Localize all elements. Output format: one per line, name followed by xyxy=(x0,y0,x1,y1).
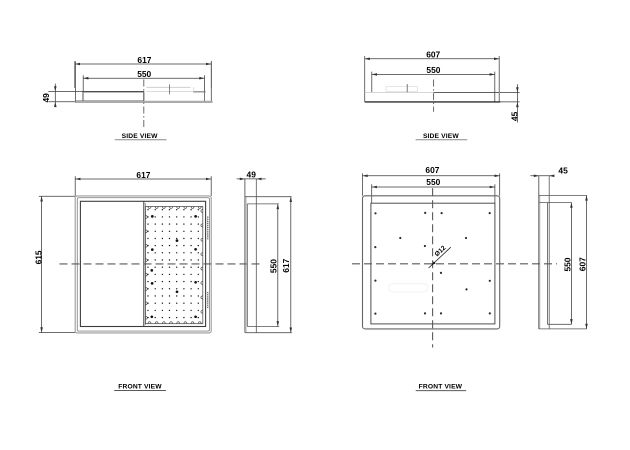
svg-text:550: 550 xyxy=(426,65,440,75)
svg-text:FRONT VIEW: FRONT VIEW xyxy=(419,383,463,390)
svg-text:617: 617 xyxy=(137,55,151,65)
svg-text:49: 49 xyxy=(41,93,51,103)
svg-text:SIDE VIEW: SIDE VIEW xyxy=(423,133,459,140)
svg-text:FRONT VIEW: FRONT VIEW xyxy=(118,383,162,390)
svg-text:607: 607 xyxy=(425,165,439,175)
svg-text:SIDE VIEW: SIDE VIEW xyxy=(122,133,158,140)
svg-text:45: 45 xyxy=(558,165,568,175)
svg-text:49: 49 xyxy=(247,170,257,180)
svg-text:550: 550 xyxy=(426,177,440,187)
svg-text:615: 615 xyxy=(34,250,44,264)
svg-text:607: 607 xyxy=(577,257,587,271)
svg-text:607: 607 xyxy=(426,50,440,60)
svg-text:550: 550 xyxy=(268,259,278,273)
svg-text:45: 45 xyxy=(510,111,520,121)
svg-text:617: 617 xyxy=(281,258,291,272)
svg-text:550: 550 xyxy=(563,257,573,271)
svg-text:550: 550 xyxy=(137,69,151,79)
svg-text:617: 617 xyxy=(136,170,150,180)
